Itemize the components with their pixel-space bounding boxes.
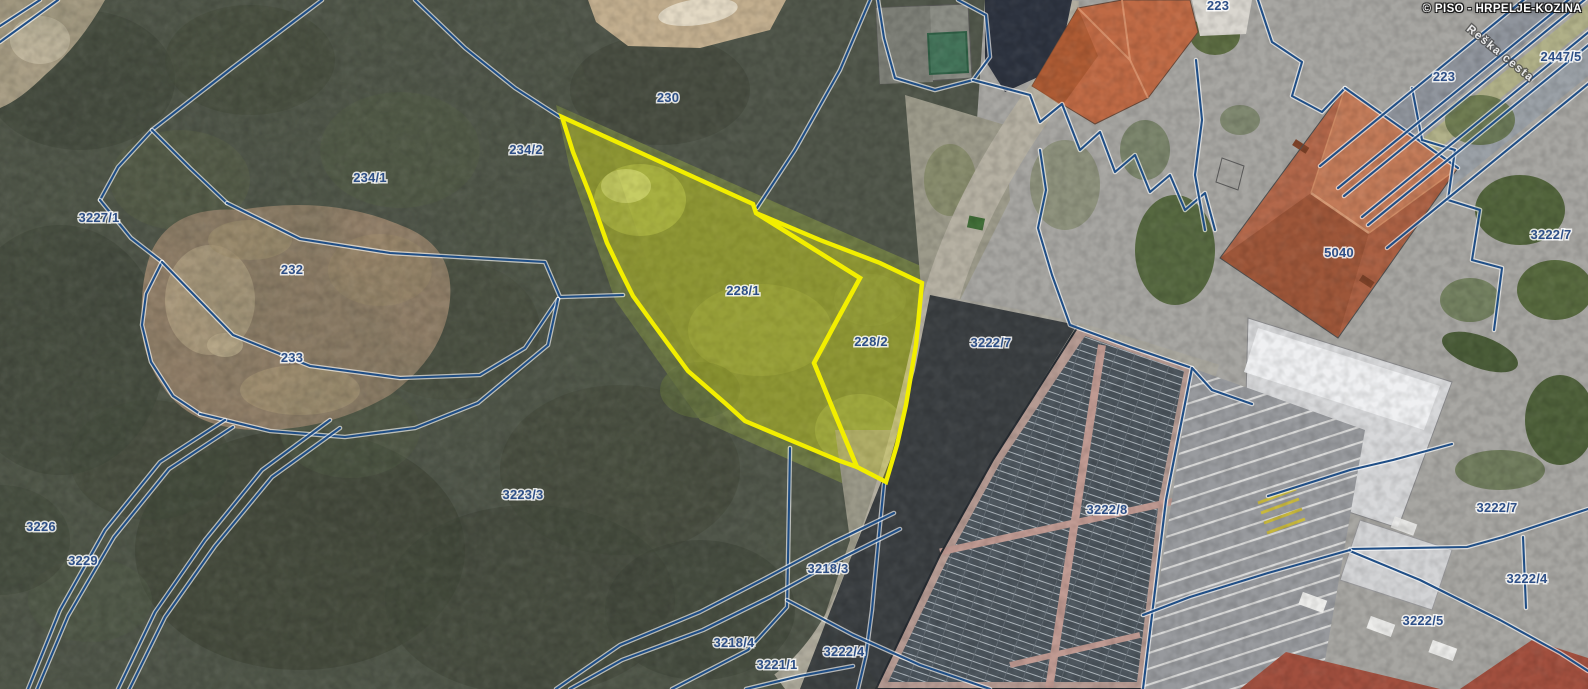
parcel-label: 3222/7 xyxy=(1477,500,1518,515)
parcel-label: 3218/3 xyxy=(808,561,849,576)
parcel-label: 3222/5 xyxy=(1403,613,1444,628)
parcel-label: 3222/7 xyxy=(1531,227,1572,242)
parcel-label: 232 xyxy=(281,262,303,277)
parcel-label: 3222/4 xyxy=(1507,571,1549,586)
aerial-map: Reška cesta 230234/2234/13227/1232233322… xyxy=(0,0,1588,689)
parcel-label: 3227/1 xyxy=(79,210,120,225)
parcel-label: 223 xyxy=(1433,69,1455,84)
parcel-label: 3222/7 xyxy=(971,335,1012,350)
parcel-label: 228/1 xyxy=(726,283,760,298)
parcel-label: 3221/1 xyxy=(757,657,798,672)
parcel-label: 3226 xyxy=(26,519,56,534)
parcel-label: 233 xyxy=(281,350,303,365)
parcel-label: 3223/3 xyxy=(503,487,544,502)
parcel-label: 234/1 xyxy=(353,170,387,185)
parcel-label: 228/2 xyxy=(854,334,888,349)
parcel-label: 5040 xyxy=(1324,245,1354,260)
parcel-label: 230 xyxy=(657,90,679,105)
parcel-label: 223 xyxy=(1207,0,1229,13)
parcel-label: 234/2 xyxy=(509,142,543,157)
parcel-label: 3218/4 xyxy=(714,635,756,650)
parcel-label: 3222/4 xyxy=(824,644,866,659)
copyright-watermark: © PISO - HRPELJE-KOZINA xyxy=(1422,3,1582,15)
parcel-label: 3229 xyxy=(68,553,98,568)
parcel-label: 3222/8 xyxy=(1087,502,1128,517)
map-viewport[interactable]: Reška cesta 230234/2234/13227/1232233322… xyxy=(0,0,1588,689)
parcel-label: 2447/5 xyxy=(1541,49,1582,64)
